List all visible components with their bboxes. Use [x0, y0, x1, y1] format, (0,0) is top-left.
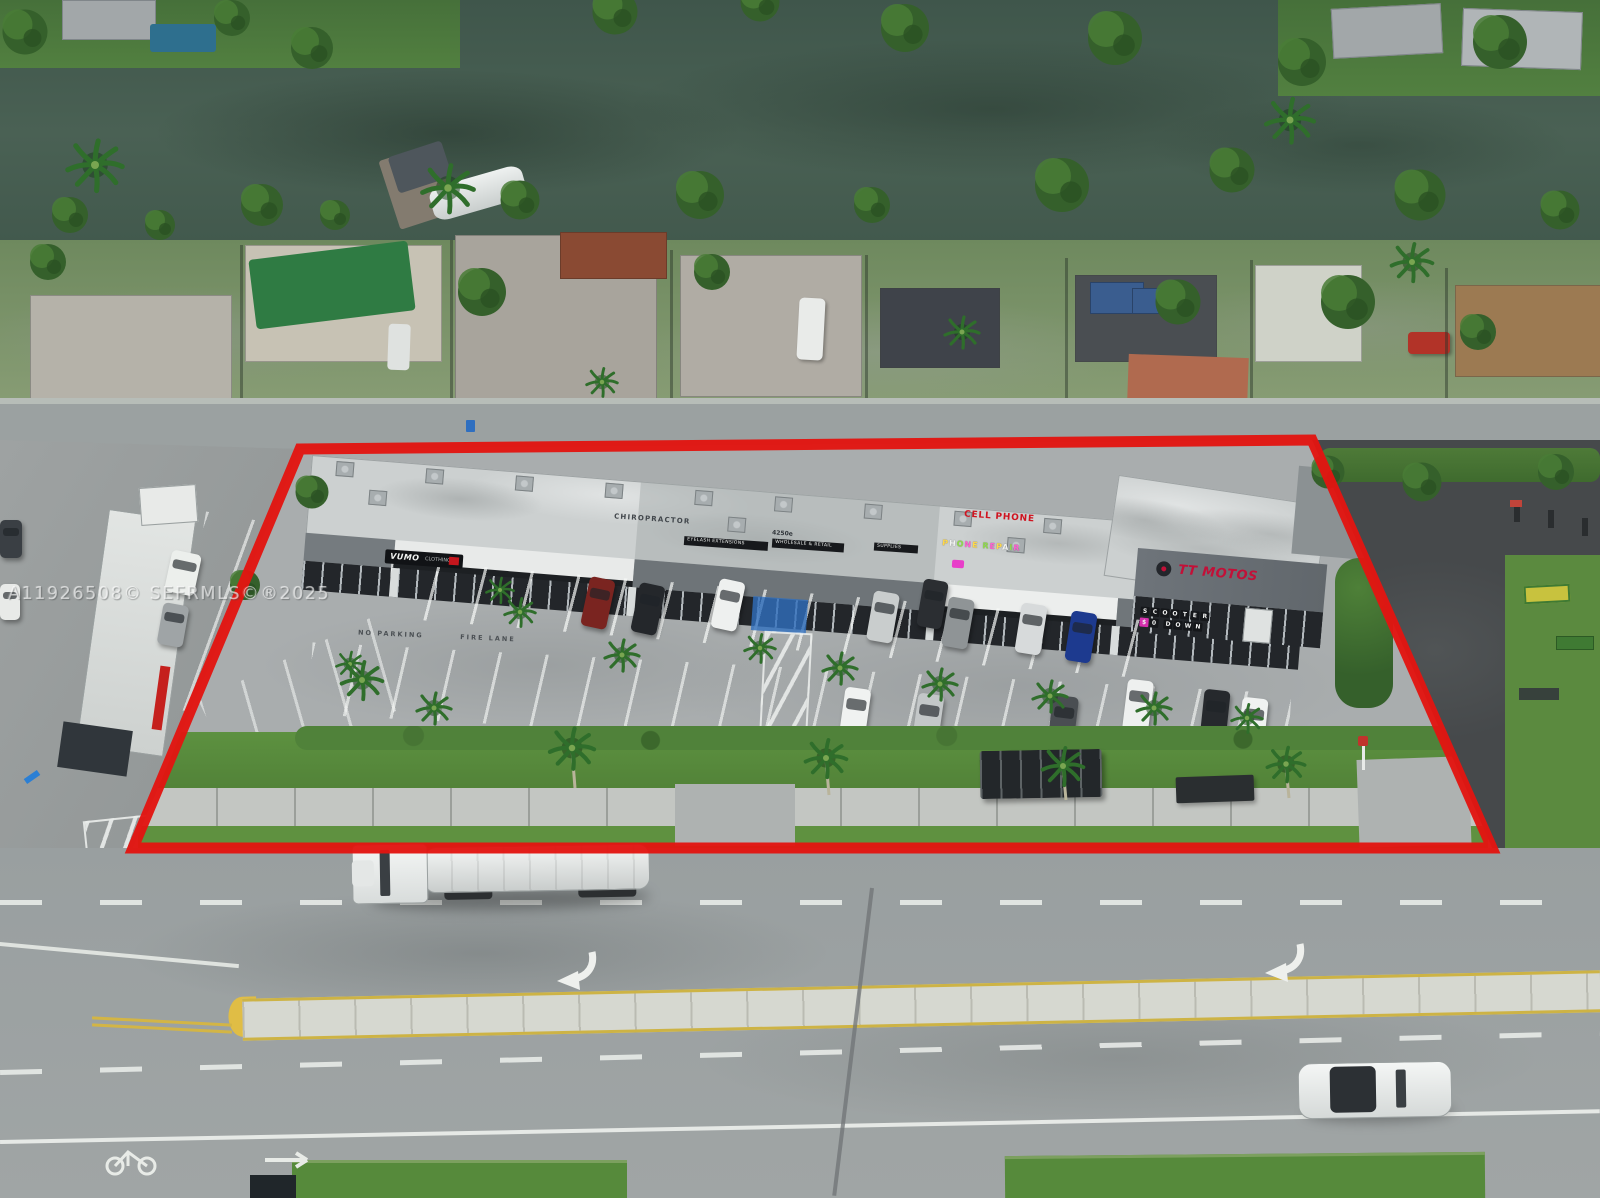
mls-watermark: A11926508© SEFRMLS©®2025 [8, 584, 330, 604]
aerial-photo-scene: TT MOTOS SCOOTER $0DOWN NO PARKING FIRE … [0, 0, 1600, 1198]
property-boundary-outline [133, 440, 1492, 848]
